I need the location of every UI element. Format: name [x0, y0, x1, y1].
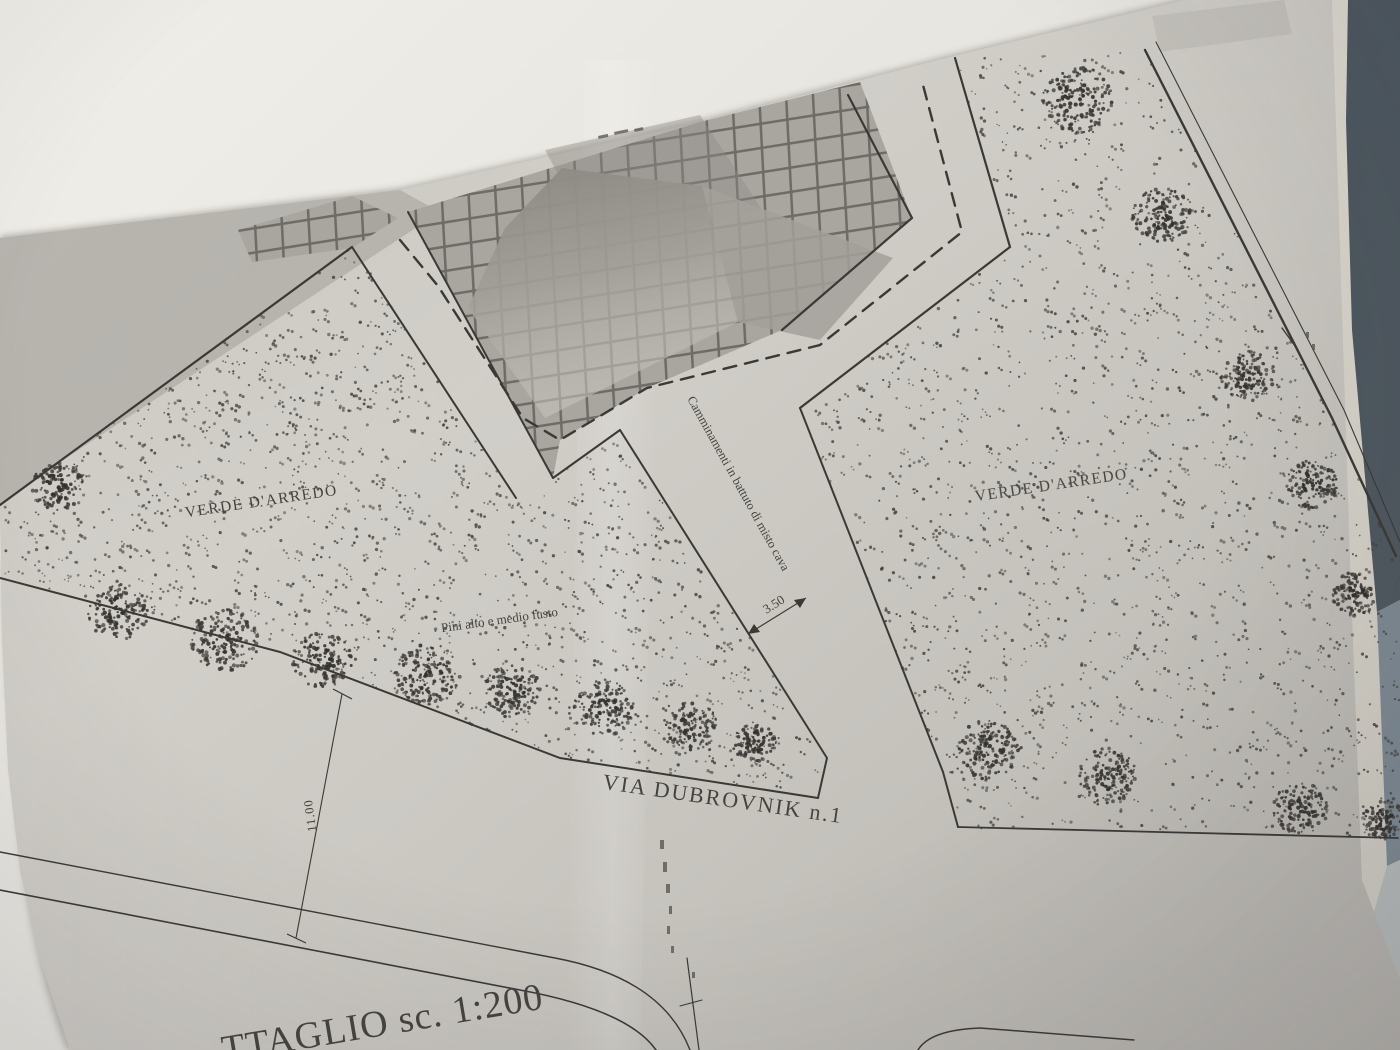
site-plan-svg: VERDE D'ARREDO VERDE D'ARREDO Camminamen… — [0, 0, 1400, 1050]
photo-of-site-plan: VERDE D'ARREDO VERDE D'ARREDO Camminamen… — [0, 0, 1400, 1050]
